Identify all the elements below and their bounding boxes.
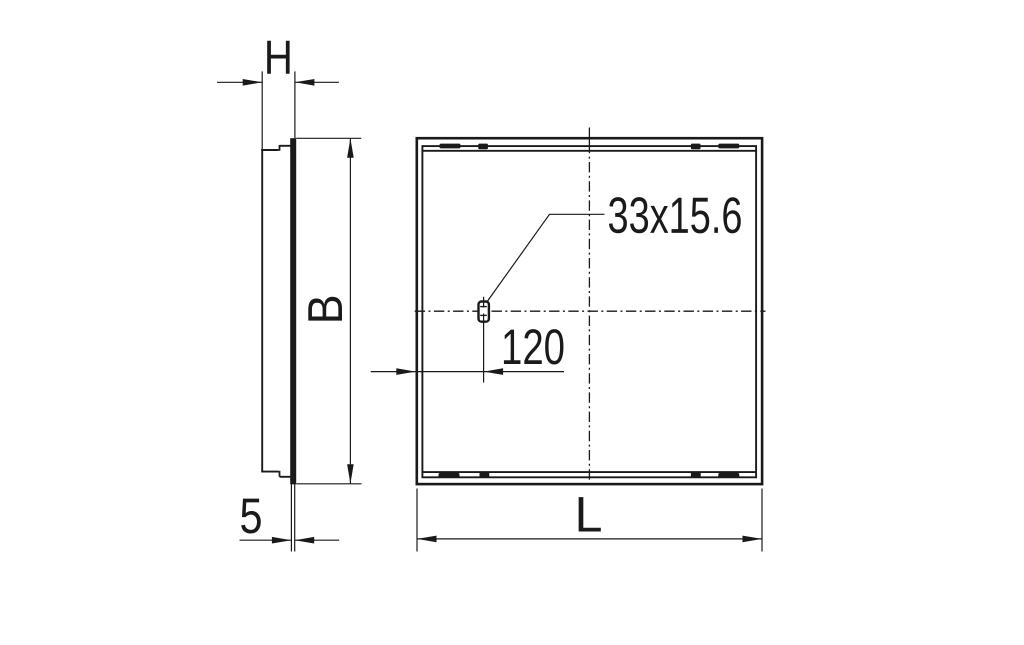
svg-text:120: 120: [501, 319, 565, 375]
svg-text:H: H: [264, 32, 293, 85]
svg-text:5: 5: [239, 488, 262, 544]
svg-text:L: L: [574, 486, 602, 542]
svg-text:33x15.6: 33x15.6: [607, 187, 742, 244]
svg-text:B: B: [299, 294, 353, 324]
